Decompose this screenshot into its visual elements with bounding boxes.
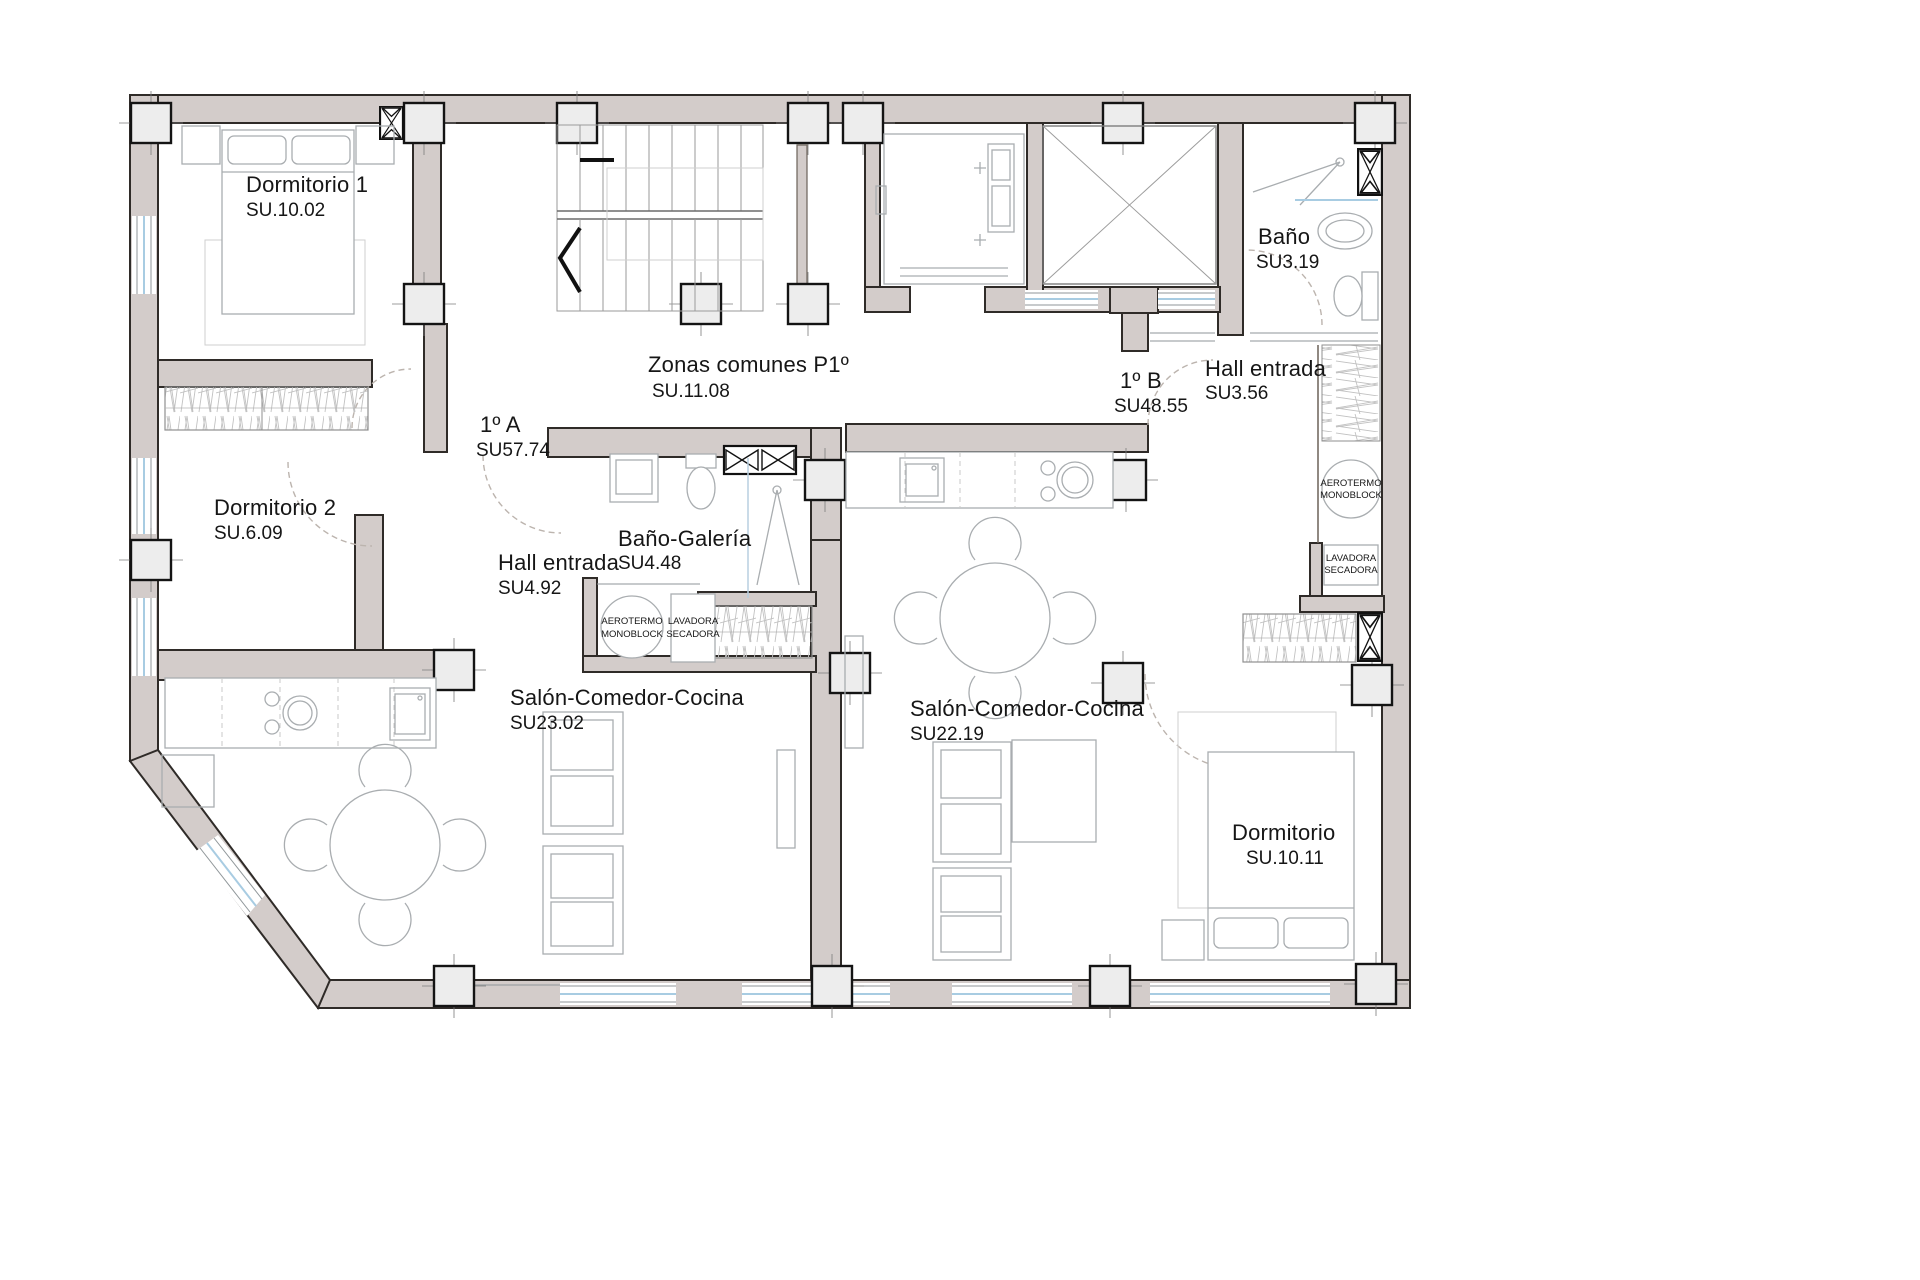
wardrobes <box>165 345 1380 662</box>
su-salon-b: SU22.19 <box>910 724 984 745</box>
window-left-2 <box>132 458 156 534</box>
vent-horizontal-icon <box>724 446 796 474</box>
vent-icon <box>1358 149 1382 195</box>
floorplan-canvas: AEROTERMO MONOBLOCK LAVADORA SECADORA AE… <box>0 0 1920 1280</box>
window-bottom-3 <box>952 983 1072 1005</box>
sofa <box>933 868 1011 960</box>
aerotermo-label-1: AEROTERMO <box>601 616 662 627</box>
vent-icon <box>380 107 403 140</box>
elevator <box>876 134 1024 284</box>
dining-table-icon <box>894 517 1095 718</box>
kitchen-b <box>846 452 1113 508</box>
window-patio-2 <box>1158 290 1215 309</box>
label-hall-a: Hall entrada <box>498 550 620 575</box>
shower-icon <box>748 458 799 598</box>
lavadora-label-2: SECADORA <box>666 629 720 640</box>
su-salon-a: SU23.02 <box>510 713 584 734</box>
nightstand <box>1162 920 1204 960</box>
galeria-a-equipment: AEROTERMO MONOBLOCK LAVADORA SECADORA <box>597 584 720 662</box>
toilet-icon <box>1334 272 1378 320</box>
label-dormitorio1: Dormitorio 1 <box>246 172 368 197</box>
label-apt-b: 1º B <box>1120 368 1162 393</box>
washbasin-icon <box>610 454 658 502</box>
wardrobe-dorm-b <box>1243 614 1356 662</box>
chaise <box>1012 740 1096 842</box>
window-left-3 <box>132 598 156 676</box>
window-bottom-4 <box>1150 983 1330 1005</box>
su-dormitorio1: SU.10.02 <box>246 200 325 221</box>
su-apt-a: SU57.74 <box>476 440 550 461</box>
su-dormitorio2: SU.6.09 <box>214 523 283 544</box>
su-bano-galeria: SU4.48 <box>618 553 681 574</box>
window-bottom-1 <box>560 983 676 1005</box>
lavadora-label-1: LAVADORA <box>668 616 719 627</box>
tv-bench <box>777 750 795 848</box>
label-apt-a: 1º A <box>480 412 521 437</box>
staircase <box>557 125 763 311</box>
kitchen-a <box>162 678 436 807</box>
label-zonas-comunes: Zonas comunes P1º <box>648 352 849 377</box>
window-left-1 <box>132 216 156 294</box>
su-hall-a: SU4.92 <box>498 578 561 599</box>
label-bano-b: Baño <box>1258 224 1310 249</box>
toilet-icon <box>686 454 716 509</box>
aerotermo-label-1: AEROTERMO <box>1320 478 1381 489</box>
nightstand <box>182 126 220 164</box>
washbasin-icon <box>1318 213 1372 249</box>
label-bano-galeria: Baño-Galería <box>618 526 752 551</box>
label-salon-b: Salón-Comedor-Cocina <box>910 696 1144 721</box>
wardrobe-dorm2 <box>165 387 368 430</box>
label-hall-b: Hall entrada <box>1205 356 1327 381</box>
su-zonas-comunes: SU.11.08 <box>652 381 730 402</box>
su-bano-b: SU3.19 <box>1256 252 1319 273</box>
wardrobe-salon-a <box>704 606 812 658</box>
su-hall-b: SU3.56 <box>1205 383 1268 404</box>
label-dormitorio2: Dormitorio 2 <box>214 495 336 520</box>
patio-shaft <box>1043 126 1216 284</box>
window-patio-1 <box>1025 290 1098 309</box>
su-apt-b: SU48.55 <box>1114 396 1188 417</box>
su-dormitorio-b: SU.10.11 <box>1246 848 1324 869</box>
sofa <box>933 742 1011 862</box>
lavadora-label-1: LAVADORA <box>1326 553 1377 564</box>
label-salon-a: Salón-Comedor-Cocina <box>510 685 744 710</box>
lavadora-unit-icon <box>671 594 715 662</box>
lavadora-label-2: SECADORA <box>1324 565 1378 576</box>
aerotermo-unit-icon <box>1322 460 1380 518</box>
bed-dormitorio1 <box>182 126 394 345</box>
aerotermo-unit-icon <box>601 596 663 658</box>
aerotermo-label-2: MONOBLOCK <box>1320 490 1382 501</box>
sofa <box>543 846 623 954</box>
tendedero-b <box>1322 345 1380 441</box>
stair-direction-arrow <box>560 228 580 292</box>
vent-icon <box>1358 613 1382 661</box>
label-dormitorio-b: Dormitorio <box>1232 820 1335 845</box>
aerotermo-label-2: MONOBLOCK <box>601 629 663 640</box>
dining-table-icon <box>284 744 485 945</box>
galeria-b-equipment: AEROTERMO MONOBLOCK LAVADORA SECADORA <box>1320 460 1382 585</box>
